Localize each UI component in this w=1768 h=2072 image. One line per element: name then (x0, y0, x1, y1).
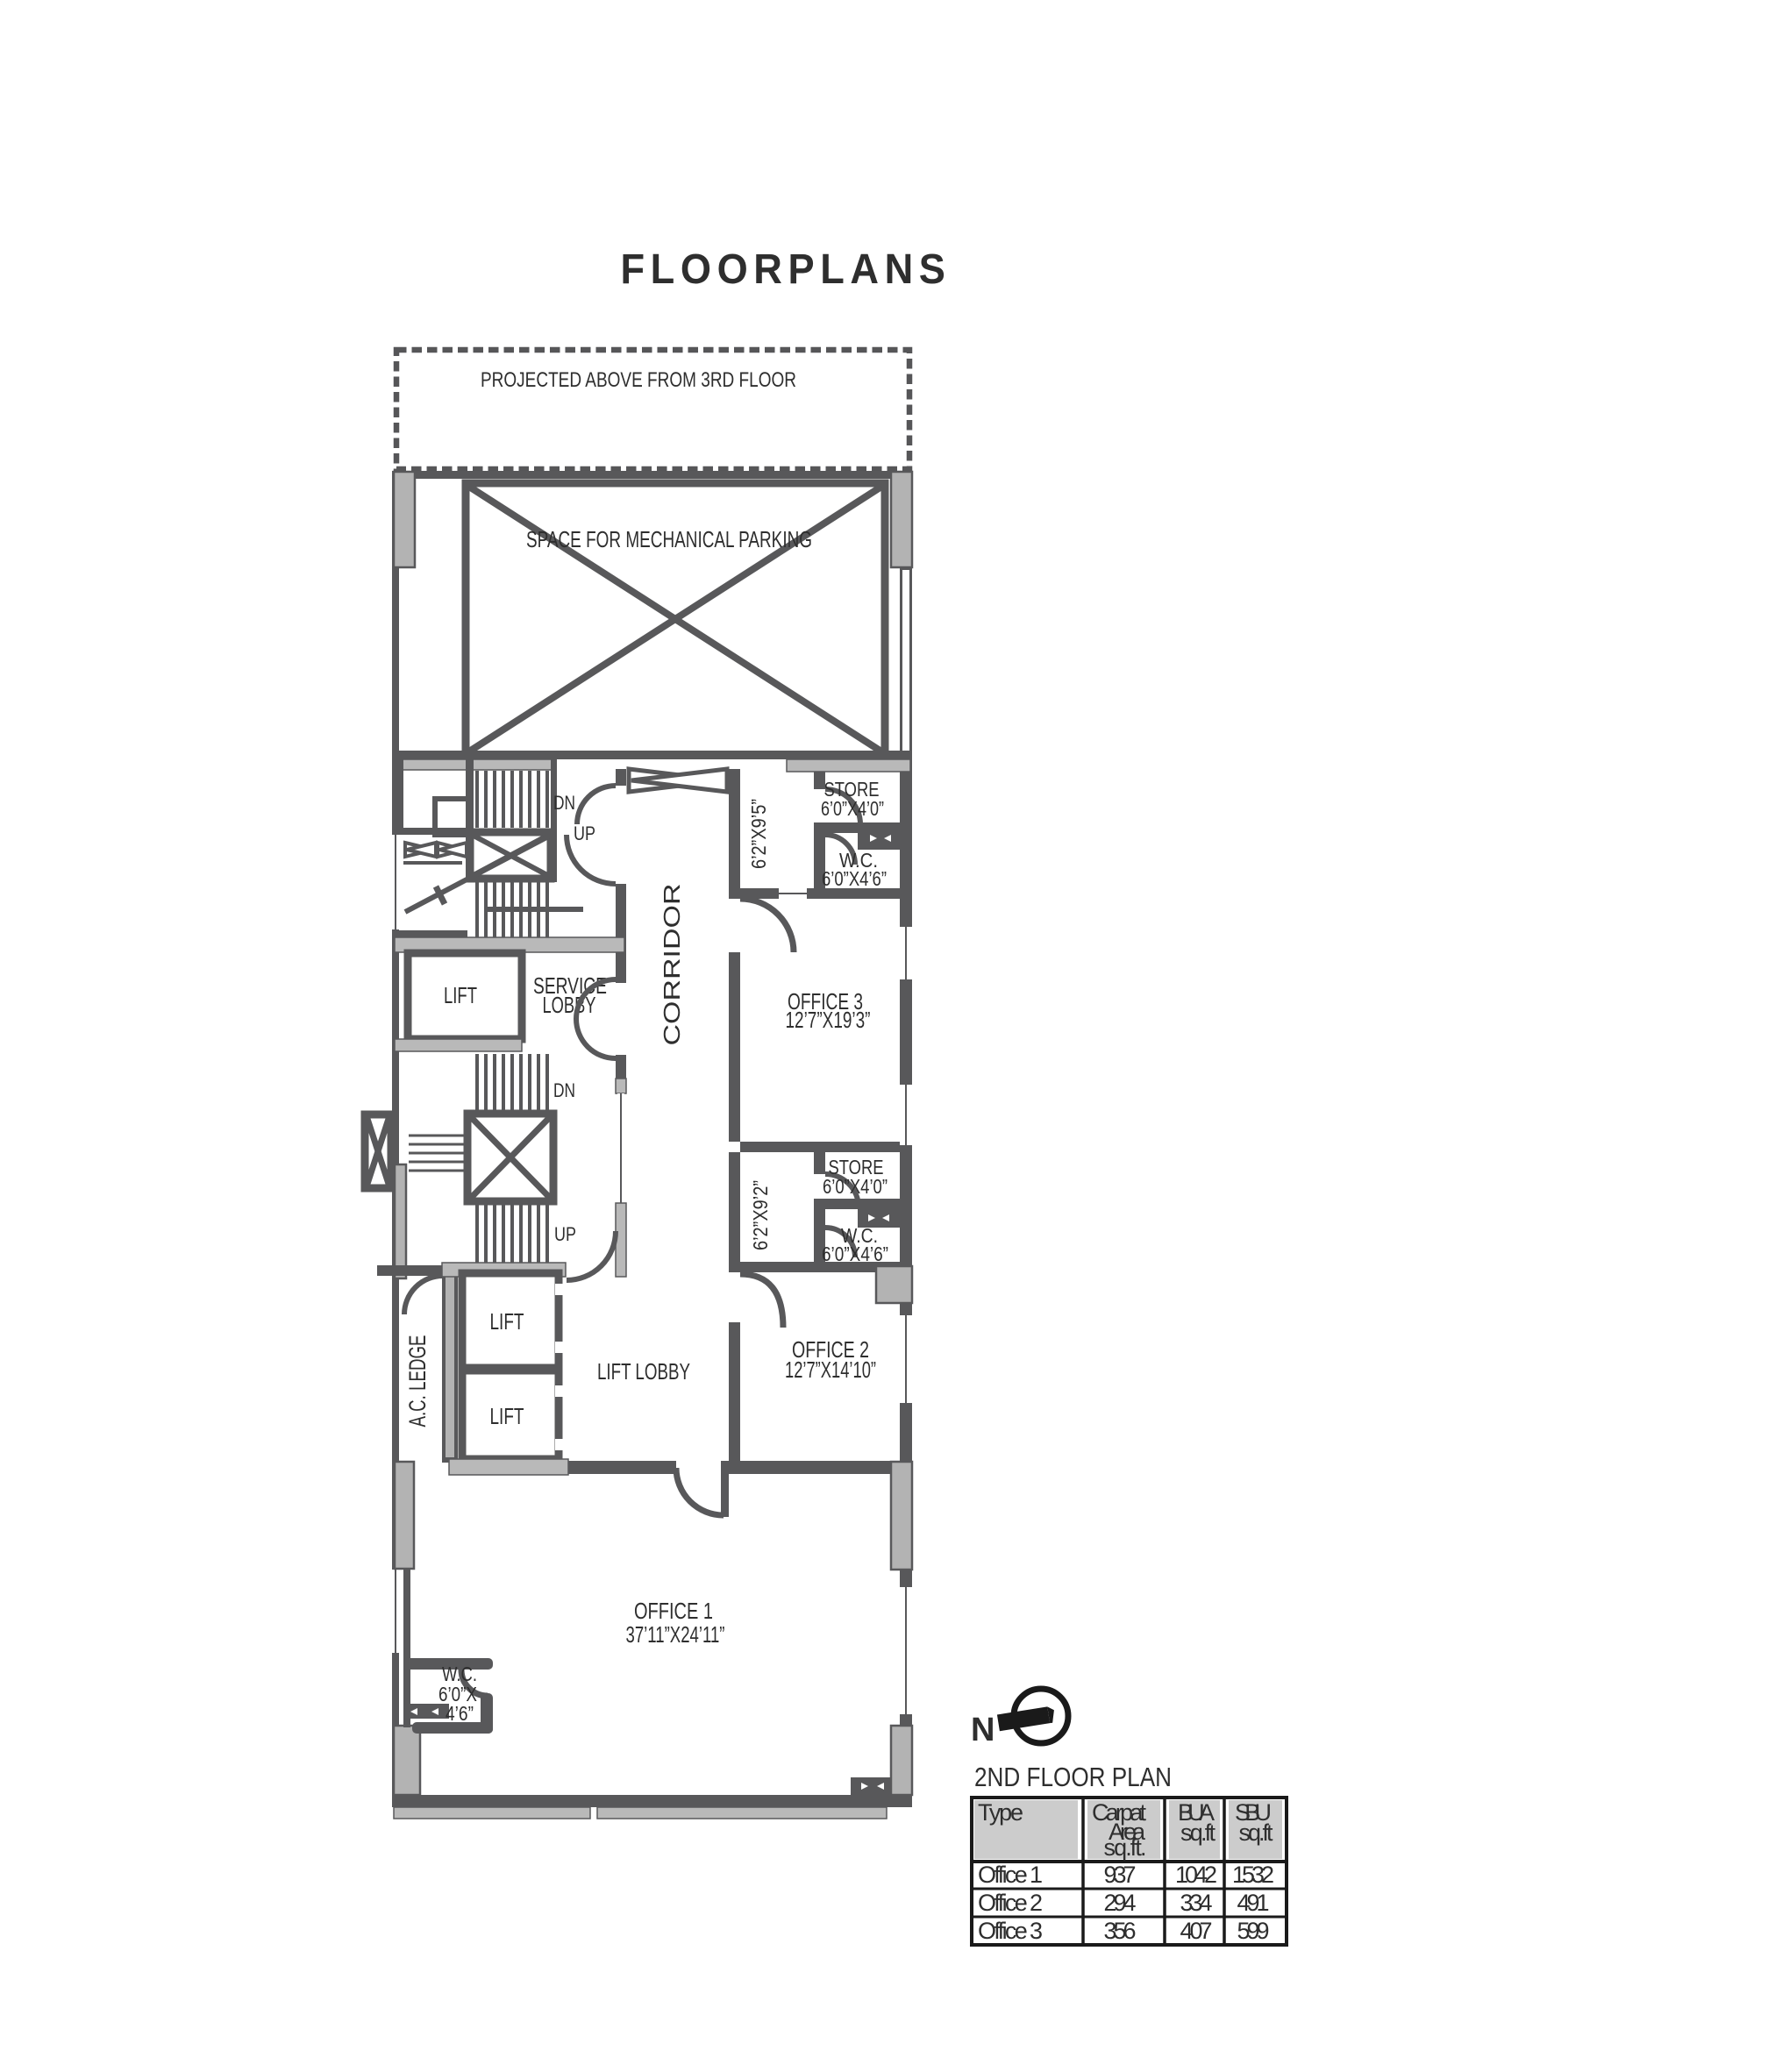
svg-text:FLOORPLANS: FLOORPLANS (621, 246, 952, 293)
svg-text:PROJECTED ABOVE FROM 3RD FLOOR: PROJECTED ABOVE FROM 3RD FLOOR (481, 368, 796, 392)
svg-text:sq.ft: sq.ft (1239, 1819, 1273, 1846)
svg-text:356: 356 (1104, 1918, 1137, 1944)
svg-text:sq.ft: sq.ft (1180, 1819, 1215, 1846)
svg-text:1042: 1042 (1175, 1862, 1217, 1888)
svg-text:SPACE FOR MECHANICAL PARKING: SPACE FOR MECHANICAL PARKING (526, 526, 812, 552)
svg-text:6’0”X4’6”: 6’0”X4’6” (822, 1242, 888, 1265)
svg-text:LIFT: LIFT (444, 982, 477, 1008)
svg-text:CORRIDOR: CORRIDOR (659, 884, 685, 1046)
svg-text:334: 334 (1180, 1890, 1213, 1916)
svg-text:LIFT: LIFT (490, 1403, 524, 1429)
svg-text:407: 407 (1180, 1918, 1213, 1944)
svg-text:LIFT: LIFT (490, 1308, 524, 1335)
svg-text:4’6”: 4’6” (446, 1702, 474, 1725)
svg-text:599: 599 (1237, 1918, 1270, 1944)
svg-text:Office 1: Office 1 (978, 1862, 1043, 1888)
svg-text:6’0”X4’0”: 6’0”X4’0” (821, 797, 884, 820)
svg-text:LIFT LOBBY: LIFT LOBBY (597, 1358, 690, 1385)
svg-text:sq.ft.: sq.ft. (1104, 1834, 1147, 1861)
svg-text:LOBBY: LOBBY (543, 992, 596, 1018)
svg-text:N: N (971, 1712, 994, 1748)
svg-text:294: 294 (1104, 1890, 1137, 1916)
svg-text:12’7”X19’3”: 12’7”X19’3” (786, 1007, 871, 1033)
svg-text:6’2”X9’2”: 6’2”X9’2” (749, 1180, 772, 1250)
svg-text:6’0”X4’6”: 6’0”X4’6” (822, 867, 887, 890)
svg-text:Office 2: Office 2 (978, 1890, 1043, 1916)
svg-text:6’2”X9’5”: 6’2”X9’5” (747, 799, 770, 869)
svg-text:12’7”X14’10”: 12’7”X14’10” (785, 1356, 876, 1383)
svg-text:UP: UP (554, 1223, 576, 1245)
svg-text:1532: 1532 (1232, 1862, 1274, 1888)
svg-text:6’0”X4’0”: 6’0”X4’0” (823, 1175, 888, 1198)
svg-text:491: 491 (1237, 1890, 1270, 1916)
svg-text:UP: UP (574, 822, 595, 844)
svg-text:DN: DN (553, 1079, 575, 1101)
svg-text:Office 3: Office 3 (978, 1918, 1043, 1944)
svg-text:37’11”X24’11”: 37’11”X24’11” (626, 1621, 725, 1648)
svg-text:Type: Type (978, 1799, 1023, 1826)
svg-text:OFFICE 1: OFFICE 1 (634, 1598, 713, 1624)
svg-text:DN: DN (553, 792, 575, 814)
svg-text:A.C. LEDGE: A.C. LEDGE (404, 1335, 431, 1428)
svg-text:937: 937 (1104, 1862, 1137, 1888)
svg-text:2ND FLOOR PLAN: 2ND FLOOR PLAN (974, 1762, 1172, 1792)
